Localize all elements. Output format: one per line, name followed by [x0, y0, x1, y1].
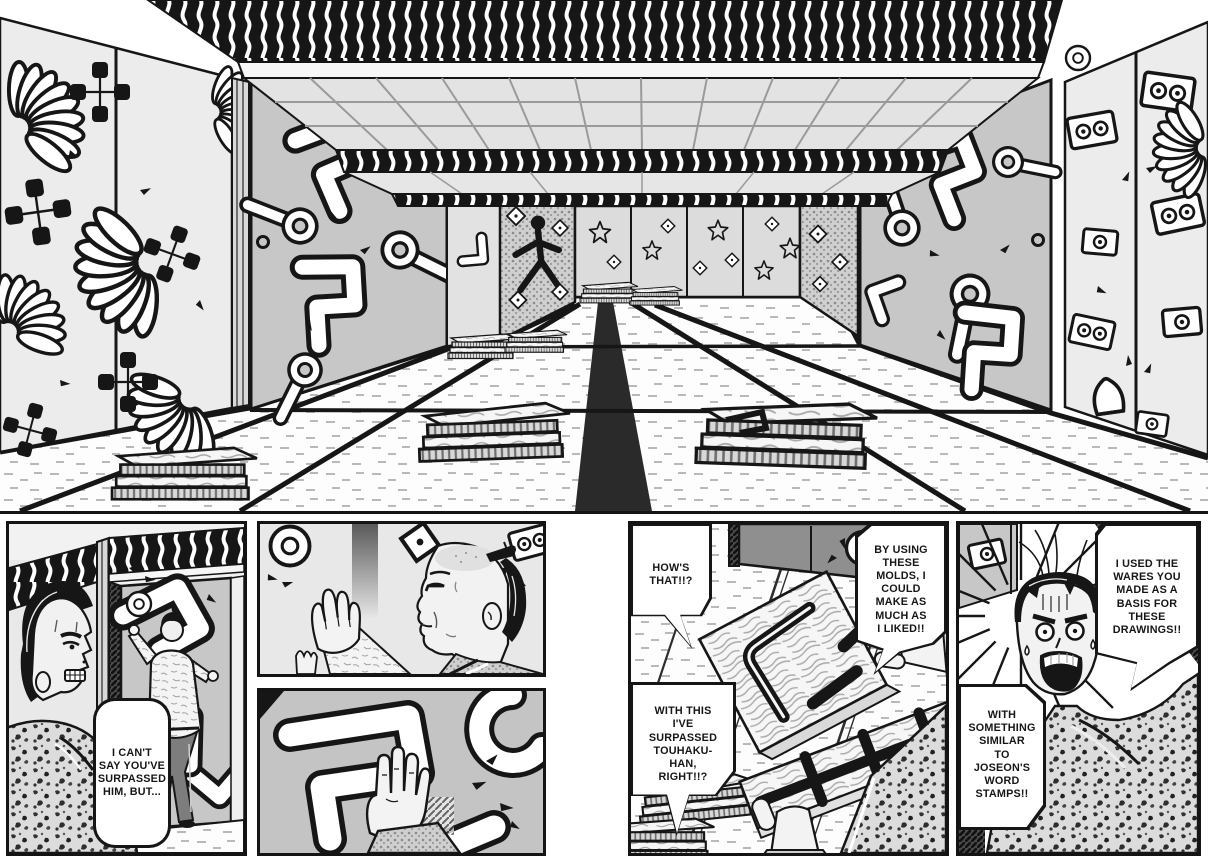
speech-text: I USED THE WARES YOU MADE AS A BASIS FOR…: [1095, 523, 1199, 691]
panel-shocked-man: I USED THE WARES YOU MADE AS A BASIS FOR…: [956, 521, 1201, 856]
speech-text: BY USING THESE MOLDS, I COULD MAKE AS MU…: [855, 523, 947, 675]
manga-page: I CAN'T SAY YOU'VE SURPASSED HIM, BUT...: [0, 0, 1208, 862]
speech-text: HOW'S THAT!!?: [630, 523, 712, 649]
right-wall: [1065, 22, 1208, 455]
panel-topknot-man: [257, 521, 546, 677]
hand-art: [260, 691, 543, 853]
panel-room-wide: [0, 0, 1208, 514]
speech-text: WITH SOMETHING SIMILAR TO JOSEON'S WORD …: [958, 684, 1046, 830]
topknot-art: [260, 524, 543, 674]
speech-bubble-onlooker: I CAN'T SAY YOU'VE SURPASSED HIM, BUT...: [93, 698, 171, 848]
speech-bubble-surpassed-touhaku: WITH THIS I'VE SURPASSED TOUHAKU- HAN, R…: [630, 682, 736, 836]
panel-hand-on-door: [257, 688, 546, 856]
speech-bubble-hows-that: HOW'S THAT!!?: [630, 523, 712, 649]
speech-bubble-by-using-molds: BY USING THESE MOLDS, I COULD MAKE AS MU…: [855, 523, 947, 675]
speech-bubble-joseon-stamps: WITH SOMETHING SIMILAR TO JOSEON'S WORD …: [958, 684, 1046, 830]
room-art: [0, 0, 1208, 511]
panel-onlooker: I CAN'T SAY YOU'VE SURPASSED HIM, BUT...: [6, 521, 247, 856]
corner-post: [232, 78, 249, 408]
speech-text: I CAN'T SAY YOU'VE SURPASSED HIM, BUT...: [93, 698, 171, 848]
speech-bubble-used-wares: I USED THE WARES YOU MADE AS A BASIS FOR…: [1095, 523, 1199, 691]
panel-molds: HOW'S THAT!!? BY USING THESE MOLDS, I CO…: [628, 521, 949, 856]
speech-text: WITH THIS I'VE SURPASSED TOUHAKU- HAN, R…: [630, 682, 736, 836]
